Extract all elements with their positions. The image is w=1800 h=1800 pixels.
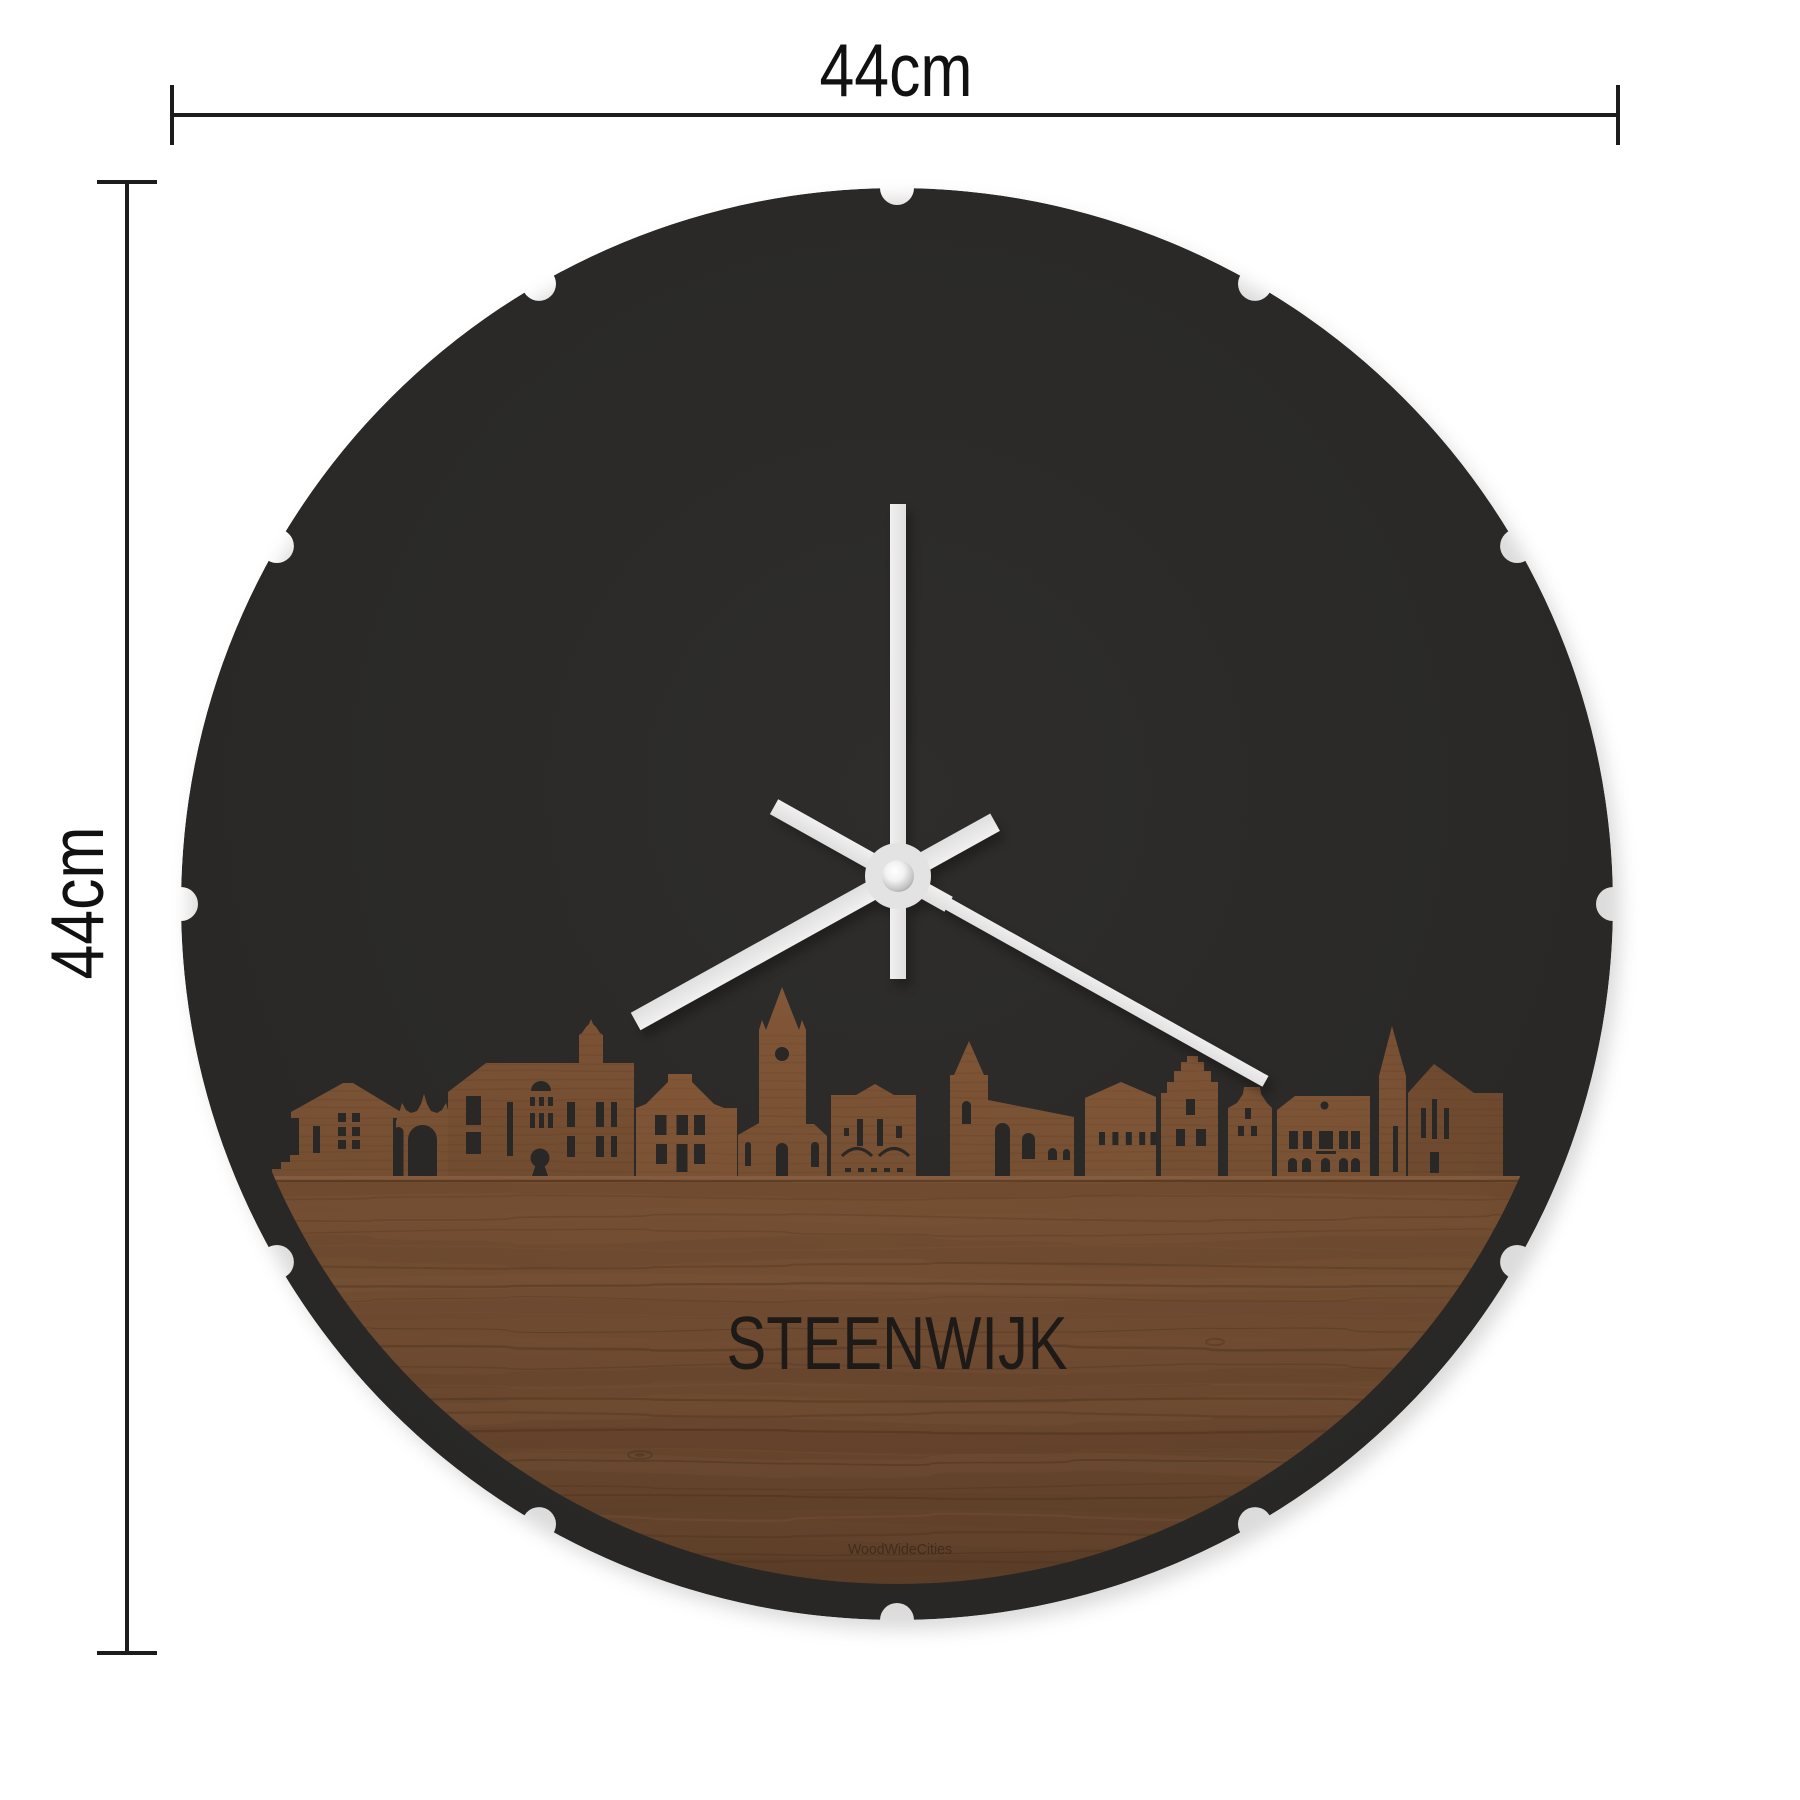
svg-text:44cm: 44cm <box>35 827 119 980</box>
svg-text:44cm: 44cm <box>820 28 973 112</box>
svg-text:WoodWideCities: WoodWideCities <box>848 1541 952 1558</box>
svg-text:STEENWIJK: STEENWIJK <box>727 1301 1068 1385</box>
